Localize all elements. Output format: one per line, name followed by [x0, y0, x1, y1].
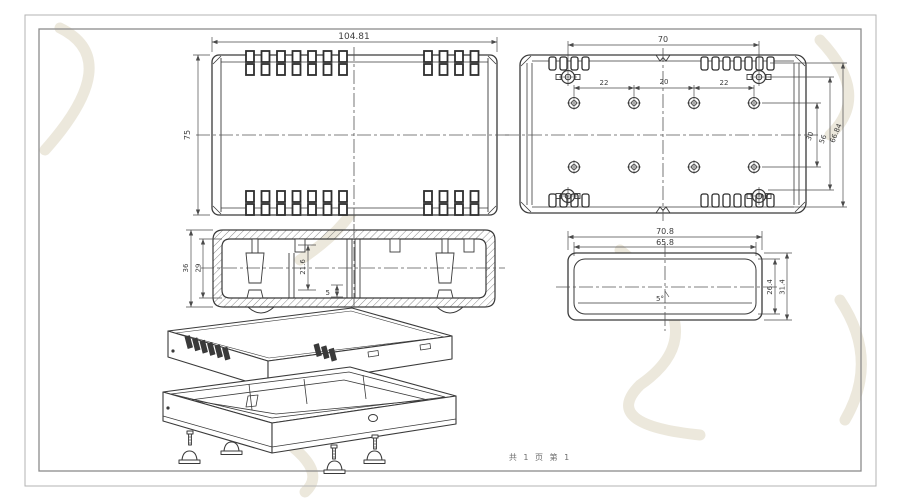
dim-row-gap: 30 — [805, 131, 816, 142]
dim-pitch-right: 22 — [720, 79, 729, 87]
dim-section-outer-height: 36 — [182, 263, 190, 272]
top-view: 104.81 75 — [183, 32, 512, 223]
page-footer-label: 共 1 页 第 1 — [509, 452, 571, 462]
dim-boss-depth: 21.6 — [299, 259, 307, 275]
drawing-sheet: 104.81 75 — [0, 0, 900, 500]
dim-interior-width: 70 — [658, 35, 668, 44]
dim-top-height: 75 — [183, 130, 192, 140]
dim-pitch-left: 22 — [600, 79, 609, 87]
dim-pitch-center: 20 — [660, 78, 669, 86]
technical-drawing: 104.81 75 — [0, 0, 900, 500]
dim-rib: 5 — [326, 289, 330, 297]
dim-outer-span: 66.84 — [829, 122, 844, 144]
draft-angle: 5° — [656, 295, 664, 303]
foot-arc-left — [248, 307, 274, 313]
isometric-view — [163, 308, 456, 474]
interior-view: 70 22 20 22 30 56 66.84 — [505, 35, 847, 221]
end-view: 5° 70.8 65.8 26.4 31.4 — [556, 227, 792, 331]
section-ribs — [246, 239, 474, 298]
dim-end-inner-height: 26.4 — [766, 279, 774, 295]
foot-arc-right — [437, 307, 463, 313]
dim-end-inner-width: 65.8 — [656, 238, 674, 247]
dim-top-width: 104.81 — [338, 32, 370, 42]
section-view: 36 29 21.6 5 — [182, 224, 505, 314]
dim-end-outer-height: 31.4 — [779, 279, 787, 295]
dim-section-inner-height: 29 — [195, 264, 203, 273]
dim-end-outer-width: 70.8 — [656, 227, 674, 236]
iso-base — [163, 367, 456, 453]
